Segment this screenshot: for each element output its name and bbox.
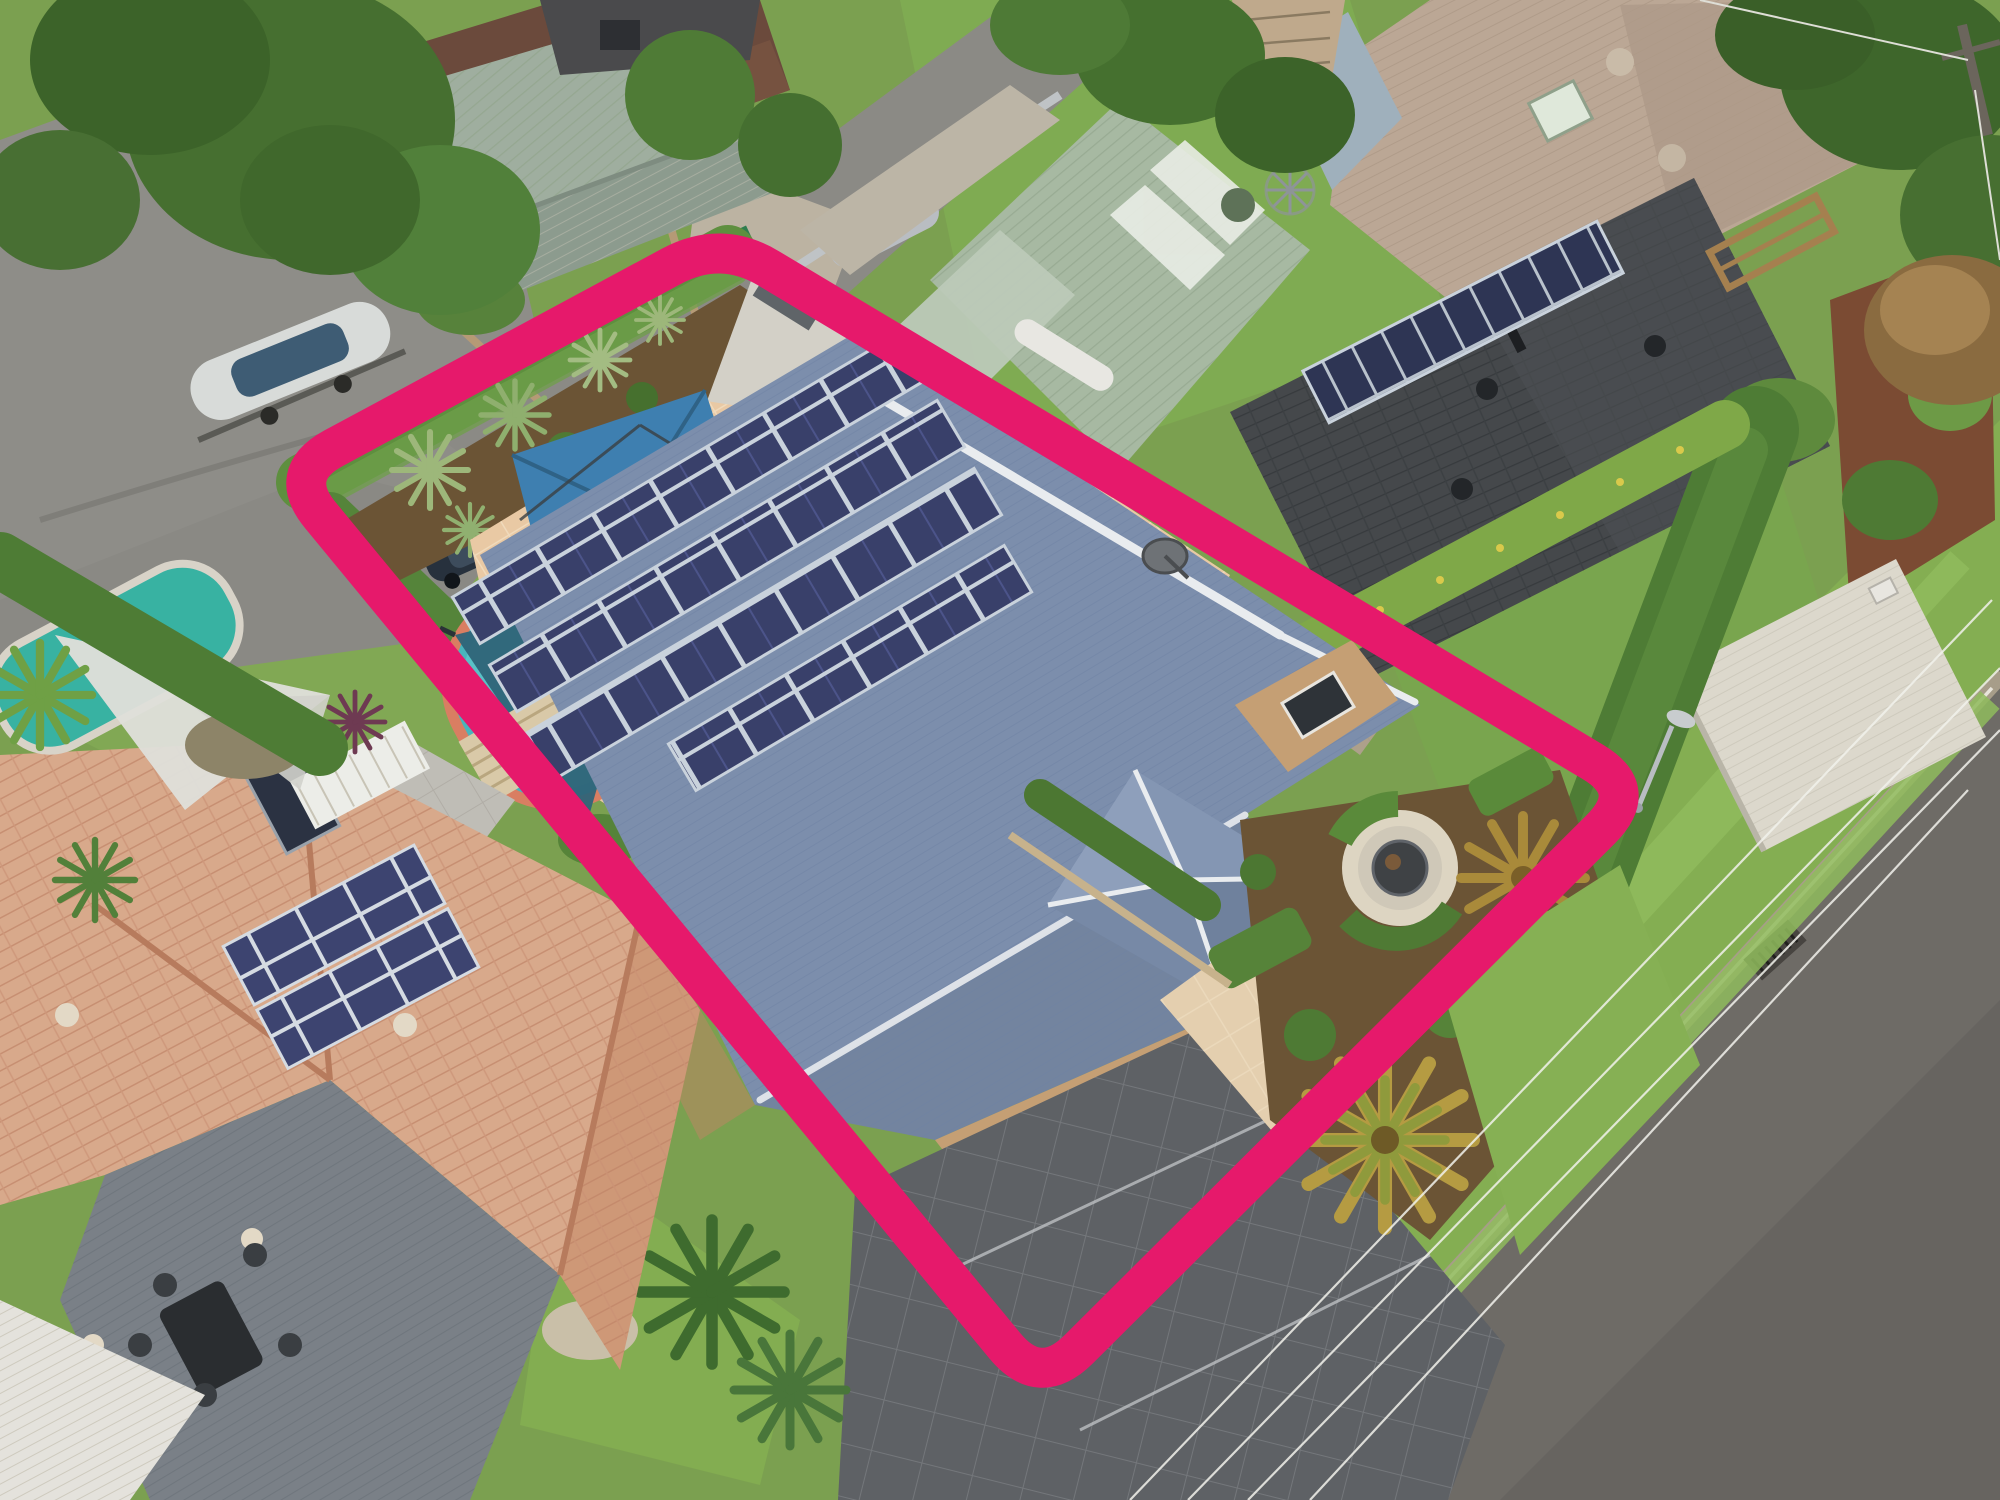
whirlybird-vent <box>1658 144 1686 172</box>
aerial-photo <box>0 0 2000 1500</box>
roof-vent-dome <box>1221 188 1255 222</box>
whirlybird-vent <box>1606 48 1634 76</box>
roof-vent <box>1644 335 1666 357</box>
roof-vent <box>1476 378 1498 400</box>
scene-canvas <box>0 0 2000 1500</box>
roof-vent <box>1451 478 1473 500</box>
rotary-clothesline <box>1266 166 1314 214</box>
